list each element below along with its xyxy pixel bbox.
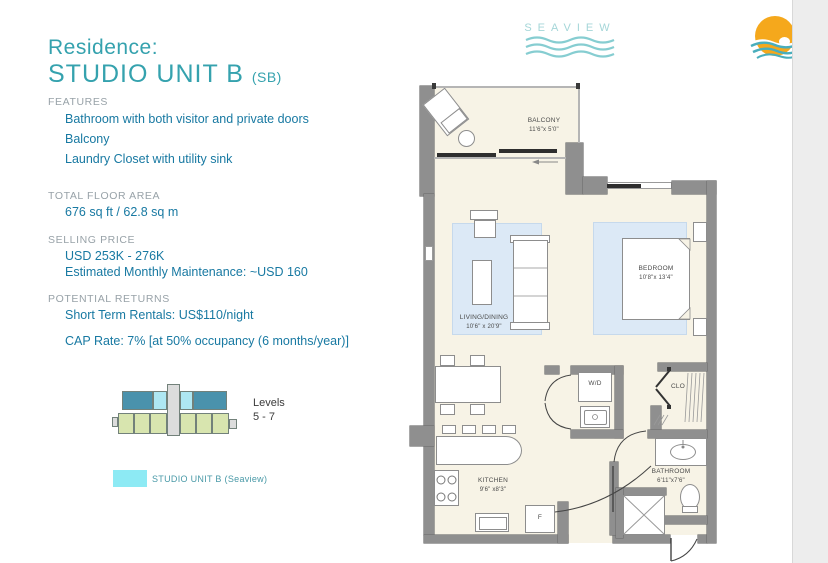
returns-heading: POTENTIAL RETURNS xyxy=(48,293,170,305)
building-unit-block xyxy=(196,413,212,434)
door-pivot xyxy=(667,405,671,409)
burner-icon xyxy=(448,493,456,501)
unit-name: STUDIO UNIT B xyxy=(48,60,244,88)
door-arc xyxy=(545,403,571,429)
door-arc xyxy=(614,431,646,462)
room-label-kitchen: KITCHEN 9'6" x8'3" xyxy=(458,476,528,495)
waves-icon xyxy=(525,36,615,60)
faucet-icon xyxy=(682,446,685,449)
levels-note: Levels 5 - 7 xyxy=(253,396,285,424)
building-unit-block xyxy=(212,413,229,434)
room-label-clo: CLO xyxy=(660,382,696,391)
legend-label: STUDIO UNIT B (Seaview) xyxy=(152,474,267,484)
door-arc xyxy=(545,375,571,401)
building-unit-block xyxy=(122,391,153,410)
floorplan: BALCONY 11'6"x 5'0" LIVING/DINING 10'6" … xyxy=(408,76,753,563)
rental-note: Short Term Rentals: US$110/night xyxy=(65,308,254,322)
legend-swatch xyxy=(113,470,147,487)
price-range: USD 253K - 276K xyxy=(65,249,164,263)
room-label-living: LIVING/DINING 10'6" x 20'9" xyxy=(444,313,524,332)
maintenance-note: Estimated Monthly Maintenance: ~USD 160 xyxy=(65,265,308,279)
door-pivot xyxy=(667,367,671,371)
drain-icon xyxy=(593,415,598,420)
entry-door-arc xyxy=(671,539,697,561)
residence-label: Residence: xyxy=(48,36,158,60)
seaview-wordmark: SEAVIEW xyxy=(500,22,640,34)
floor-area-value: 676 sq ft / 62.8 sq m xyxy=(65,205,178,219)
slide-arrow-head xyxy=(532,160,539,165)
building-wing-tab xyxy=(112,417,118,427)
building-unit-block xyxy=(134,413,150,434)
unit-code: (SB) xyxy=(252,69,282,85)
selling-price-heading: SELLING PRICE xyxy=(48,234,135,246)
building-unit-block xyxy=(150,413,167,434)
hatch-marks xyxy=(654,415,668,425)
page-gutter xyxy=(792,0,828,563)
building-wing-tab xyxy=(229,419,237,429)
shower-x xyxy=(624,496,664,534)
features-heading: FEATURES xyxy=(48,96,108,108)
building-unit-block xyxy=(193,391,227,410)
feature-item: Balcony xyxy=(65,132,109,146)
room-label-balcony: BALCONY 11'6"x 5'0" xyxy=(504,116,584,135)
sun-waves-logo-icon xyxy=(753,16,797,60)
fridge-label: F xyxy=(525,513,555,522)
cap-rate-note: CAP Rate: 7% [at 50% occupancy (6 months… xyxy=(65,334,349,348)
burner-icon xyxy=(437,476,445,484)
highlighted-studio-unit-block xyxy=(153,391,167,410)
feature-item: Laundry Closet with utility sink xyxy=(65,152,232,166)
highlighted-studio-unit-block xyxy=(180,391,193,410)
room-label-wd: W/D xyxy=(578,379,612,388)
page-title: STUDIO UNIT B (SB) xyxy=(48,60,282,89)
building-unit-block xyxy=(180,413,196,434)
room-label-bedroom: BEDROOM 10'8"x 13'4" xyxy=(621,264,691,283)
floor-area-heading: TOTAL FLOOR AREA xyxy=(48,190,160,202)
sofa-cushion-lines xyxy=(514,268,547,296)
levels-range: 5 - 7 xyxy=(253,410,285,424)
levels-label: Levels xyxy=(253,396,285,410)
brochure-page: Residence: STUDIO UNIT B (SB) FEATURES B… xyxy=(0,0,828,563)
closet-rod-hatch xyxy=(685,373,704,422)
burner-icon xyxy=(448,476,456,484)
burner-icon xyxy=(437,493,445,501)
feature-item: Bathroom with both visitor and private d… xyxy=(65,112,309,126)
room-label-bathroom: BATHROOM 6'11"x7'6" xyxy=(633,467,709,486)
building-unit-block xyxy=(118,413,134,434)
building-cross-section-diagram xyxy=(112,382,252,440)
building-core-block xyxy=(167,384,180,436)
